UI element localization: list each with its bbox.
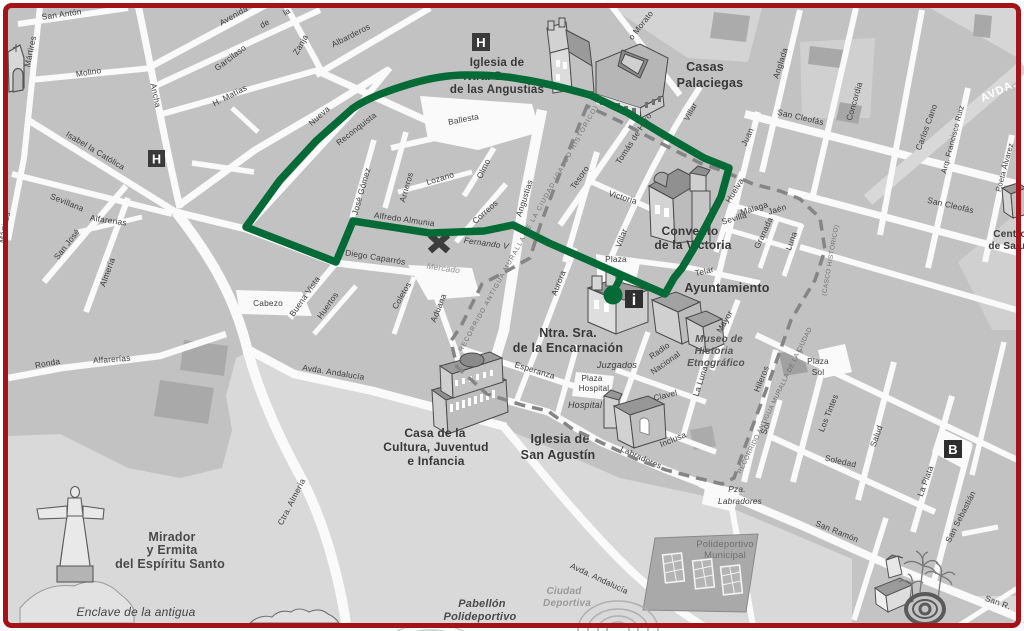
- svg-text:H: H: [476, 35, 485, 50]
- svg-text:Plaza: Plaza: [581, 374, 602, 383]
- svg-text:H: H: [152, 153, 161, 167]
- svg-text:de la Encarnación: de la Encarnación: [513, 341, 623, 355]
- svg-text:Historia: Historia: [695, 346, 734, 357]
- svg-text:Iglesia de: Iglesia de: [470, 57, 524, 69]
- svg-text:Pza.: Pza.: [728, 484, 745, 494]
- svg-text:Pabellón: Pabellón: [458, 598, 506, 610]
- svg-text:del Espíritu Santo: del Espíritu Santo: [115, 557, 225, 571]
- svg-text:Plaza: Plaza: [807, 356, 829, 366]
- svg-text:Polideportivo: Polideportivo: [696, 539, 754, 550]
- svg-text:Deportiva: Deportiva: [543, 598, 591, 609]
- svg-text:Casas: Casas: [686, 60, 724, 74]
- svg-text:Mirador: Mirador: [148, 530, 195, 544]
- svg-text:Cultura, Juventud: Cultura, Juventud: [383, 440, 488, 454]
- svg-text:Sol: Sol: [812, 367, 825, 377]
- svg-text:San Agustín: San Agustín: [521, 448, 596, 462]
- svg-text:Ayuntamiento: Ayuntamiento: [684, 281, 769, 295]
- svg-text:Hospital: Hospital: [568, 400, 603, 410]
- svg-text:e Infancia: e Infancia: [407, 454, 464, 468]
- svg-text:Municipal: Municipal: [704, 550, 746, 561]
- svg-text:Palaciegas: Palaciegas: [677, 76, 744, 90]
- svg-text:Etnográfico: Etnográfico: [687, 358, 745, 369]
- svg-text:de las Angustias: de las Angustias: [450, 84, 544, 96]
- svg-text:Ciudad: Ciudad: [546, 586, 582, 597]
- svg-text:Hospital: Hospital: [579, 384, 610, 393]
- svg-text:B: B: [948, 442, 957, 457]
- svg-text:Polideportivo: Polideportivo: [444, 611, 517, 623]
- svg-text:Enclave de la antigua: Enclave de la antigua: [77, 605, 196, 619]
- svg-text:Cabezo: Cabezo: [253, 298, 283, 308]
- svg-text:y Ermita: y Ermita: [147, 543, 199, 557]
- svg-text:Ntra. Sra.: Ntra. Sra.: [539, 326, 597, 340]
- svg-text:Casa de la: Casa de la: [404, 426, 465, 440]
- svg-text:Museo de: Museo de: [695, 334, 743, 345]
- svg-text:Juzgados: Juzgados: [596, 360, 637, 370]
- svg-text:Plaza: Plaza: [605, 254, 627, 264]
- svg-text:i: i: [632, 292, 636, 309]
- svg-text:Labradores: Labradores: [718, 496, 762, 506]
